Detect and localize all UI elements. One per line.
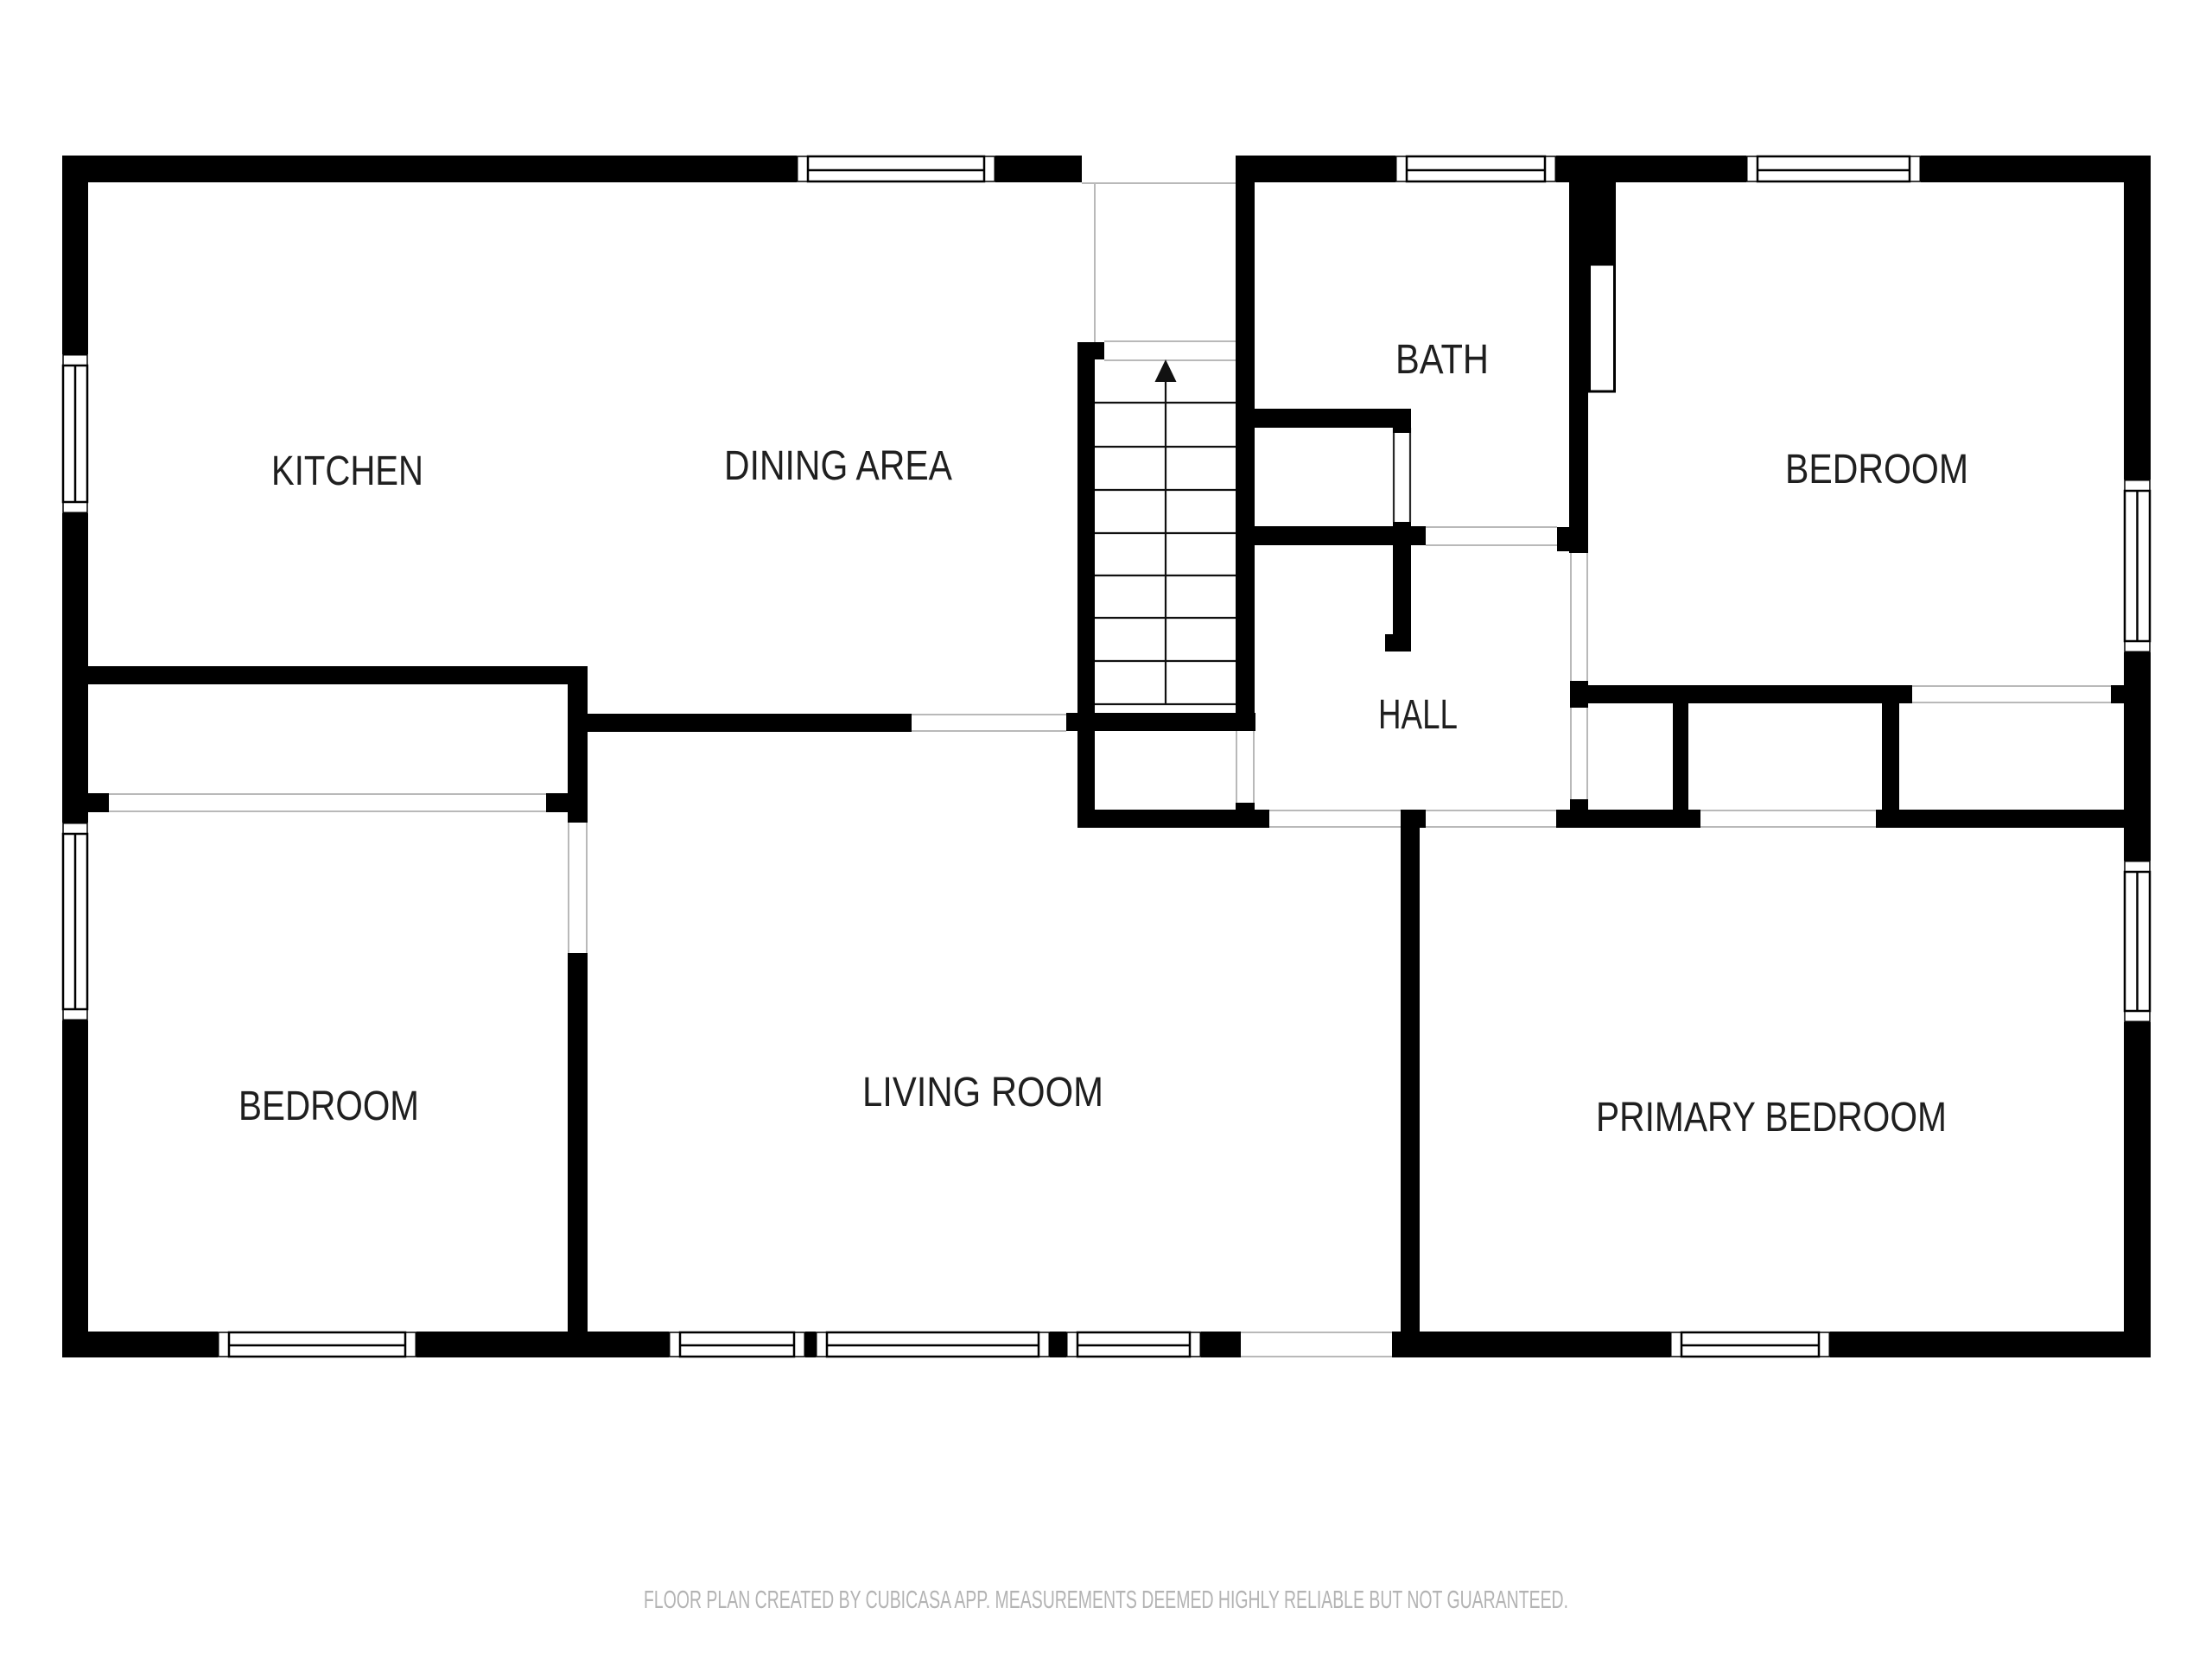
svg-text:DINING AREA: DINING AREA: [724, 443, 952, 489]
svg-text:BATH: BATH: [1395, 337, 1489, 383]
svg-text:BEDROOM: BEDROOM: [238, 1084, 419, 1129]
svg-text:PRIMARY BEDROOM: PRIMARY BEDROOM: [1596, 1095, 1947, 1141]
svg-text:FLOOR PLAN CREATED BY CUBICASA: FLOOR PLAN CREATED BY CUBICASA APP. MEAS…: [644, 1586, 1568, 1614]
svg-text:BEDROOM: BEDROOM: [1785, 447, 1968, 493]
svg-text:LIVING ROOM: LIVING ROOM: [862, 1070, 1103, 1116]
svg-text:KITCHEN: KITCHEN: [271, 448, 423, 494]
svg-text:HALL: HALL: [1378, 692, 1458, 738]
